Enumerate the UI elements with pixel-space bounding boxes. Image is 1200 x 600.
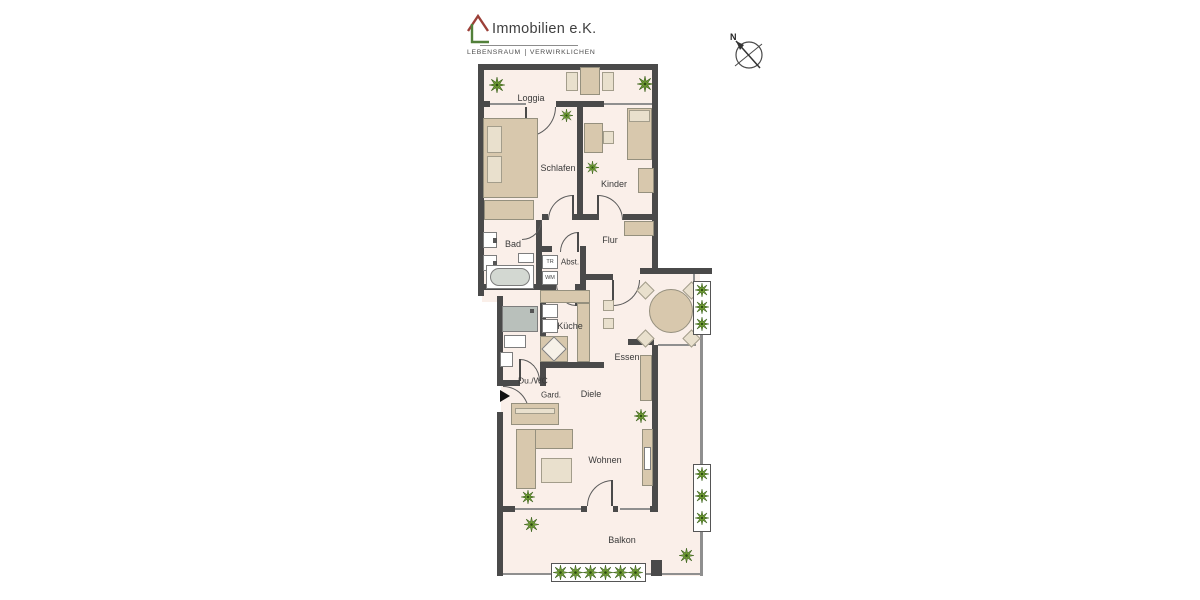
- plant-icon: [695, 283, 709, 297]
- kitchen-dishwasher: [542, 319, 558, 333]
- sofa-left: [516, 429, 536, 489]
- label-wohnen: Wohnen: [588, 455, 621, 465]
- plant-icon: [695, 489, 709, 503]
- plant-icon: [553, 565, 568, 580]
- window-living-right: [620, 508, 650, 510]
- balcony-railing-right: [700, 334, 703, 576]
- dining-table: [649, 289, 693, 333]
- dining-side-chair-1: [603, 300, 614, 311]
- kitchen-counter-right: [577, 303, 590, 362]
- label-loggia: Loggia: [517, 93, 544, 103]
- compass-icon: [726, 28, 770, 74]
- coffee-table: [541, 458, 572, 483]
- door-balkon-leaf: [611, 480, 613, 506]
- plant-icon: [634, 409, 648, 423]
- shelf-kinder: [638, 168, 654, 193]
- entrance-arrow-icon: [500, 390, 510, 402]
- bed-kinder-pillow: [629, 110, 650, 122]
- wall-bay-top: [640, 268, 712, 274]
- duwc-wc: [500, 352, 513, 367]
- plant-icon: [613, 565, 628, 580]
- wall-hall-dining: [586, 274, 613, 280]
- label-dusche-wc: Du./WC: [518, 376, 544, 385]
- plant-icon: [598, 565, 613, 580]
- door-kinder-leaf: [597, 195, 599, 220]
- loggia-chair-left: [566, 72, 578, 91]
- plant-icon: [695, 317, 709, 331]
- wardrobe-schlafen: [484, 200, 534, 220]
- shower-drain: [530, 309, 534, 313]
- label-essen: Essen: [614, 352, 639, 362]
- bed-pillow-2: [487, 156, 502, 183]
- kitchen-counter-top: [540, 290, 590, 303]
- sideboard-essen: [640, 355, 652, 401]
- wall-left-lower-b: [497, 412, 503, 512]
- wardrobe-garderobe: [511, 403, 559, 425]
- wardrobe-garderobe-shelf: [515, 408, 555, 414]
- wall-rooms-bottom-c: [573, 214, 598, 220]
- plant-icon: [568, 565, 583, 580]
- wall-balcony-left: [497, 512, 503, 576]
- wall-balcony-post: [651, 560, 662, 576]
- dining-side-chair-2: [603, 318, 614, 329]
- plant-icon: [586, 161, 599, 174]
- logo-tagline: LEBENSRAUM VERWIRKLICHEN: [467, 49, 595, 56]
- wall-kitchen-bottom: [540, 362, 604, 368]
- tv-screen: [644, 447, 651, 470]
- label-balkon: Balkon: [608, 535, 636, 545]
- bed-pillow-1: [487, 126, 502, 153]
- plant-icon: [695, 300, 709, 314]
- label-flur: Flur: [602, 235, 618, 245]
- bad-shelf: [518, 253, 534, 263]
- plant-icon: [628, 565, 643, 580]
- plant-icon: [695, 467, 709, 481]
- window-loggia-right: [604, 103, 652, 105]
- plant-icon: [521, 490, 535, 504]
- label-trockner: TR: [546, 259, 553, 265]
- wall-bedrooms-divider: [577, 107, 583, 220]
- label-garderobe: Gard.: [541, 391, 561, 400]
- logo-house-icon: [464, 12, 492, 46]
- label-diele: Diele: [581, 389, 602, 399]
- label-kinder: Kinder: [601, 179, 627, 189]
- plant-icon: [679, 548, 694, 563]
- plant-icon: [695, 511, 709, 525]
- label-kueche: Küche: [557, 321, 583, 331]
- window-loggia-left: [490, 103, 526, 105]
- logo-tagline-left: LEBENSRAUM: [467, 49, 521, 56]
- wall-living-bottom-b: [581, 506, 587, 512]
- wall-rooms-bottom-d: [623, 214, 652, 220]
- wall-storage-top: [542, 246, 552, 252]
- wall-living-bottom-c: [613, 506, 618, 512]
- floorplan-page: Immobilien e.K. LEBENSRAUM VERWIRKLICHEN…: [0, 0, 1200, 600]
- plant-icon: [560, 109, 573, 122]
- loggia-table: [580, 67, 600, 95]
- chair-kinder: [603, 131, 614, 144]
- plant-icon: [524, 517, 539, 532]
- loggia-chair-right: [602, 72, 614, 91]
- label-waschmaschine: WM: [545, 275, 555, 281]
- plant-icon: [637, 76, 653, 92]
- desk-kinder: [584, 123, 603, 153]
- plant-icon: [583, 565, 598, 580]
- window-living-left: [515, 508, 581, 510]
- duwc-sink: [504, 335, 526, 348]
- wall-loggia-stub: [482, 101, 490, 107]
- bad-sink-tap: [493, 238, 497, 243]
- kitchen-sink-unit: [542, 304, 558, 318]
- logo-rule: [480, 45, 578, 46]
- logo-tagline-divider: [525, 49, 526, 56]
- door-abstellraum-leaf: [577, 232, 579, 252]
- door-schlafen-leaf: [572, 195, 574, 220]
- label-bad: Bad: [505, 239, 521, 249]
- plant-icon: [489, 77, 505, 93]
- label-schlafen: Schlafen: [540, 163, 575, 173]
- bathtub-basin: [490, 268, 530, 286]
- logo-tagline-right: VERWIRKLICHEN: [530, 49, 596, 56]
- wall-shower-bottom: [497, 380, 520, 386]
- logo-name: Immobilien e.K.: [492, 21, 596, 37]
- cabinet-flur: [624, 221, 654, 236]
- wall-living-bottom-d: [650, 506, 658, 512]
- wall-top-outer: [478, 64, 658, 70]
- label-abstellraum: Abst.: [561, 258, 579, 267]
